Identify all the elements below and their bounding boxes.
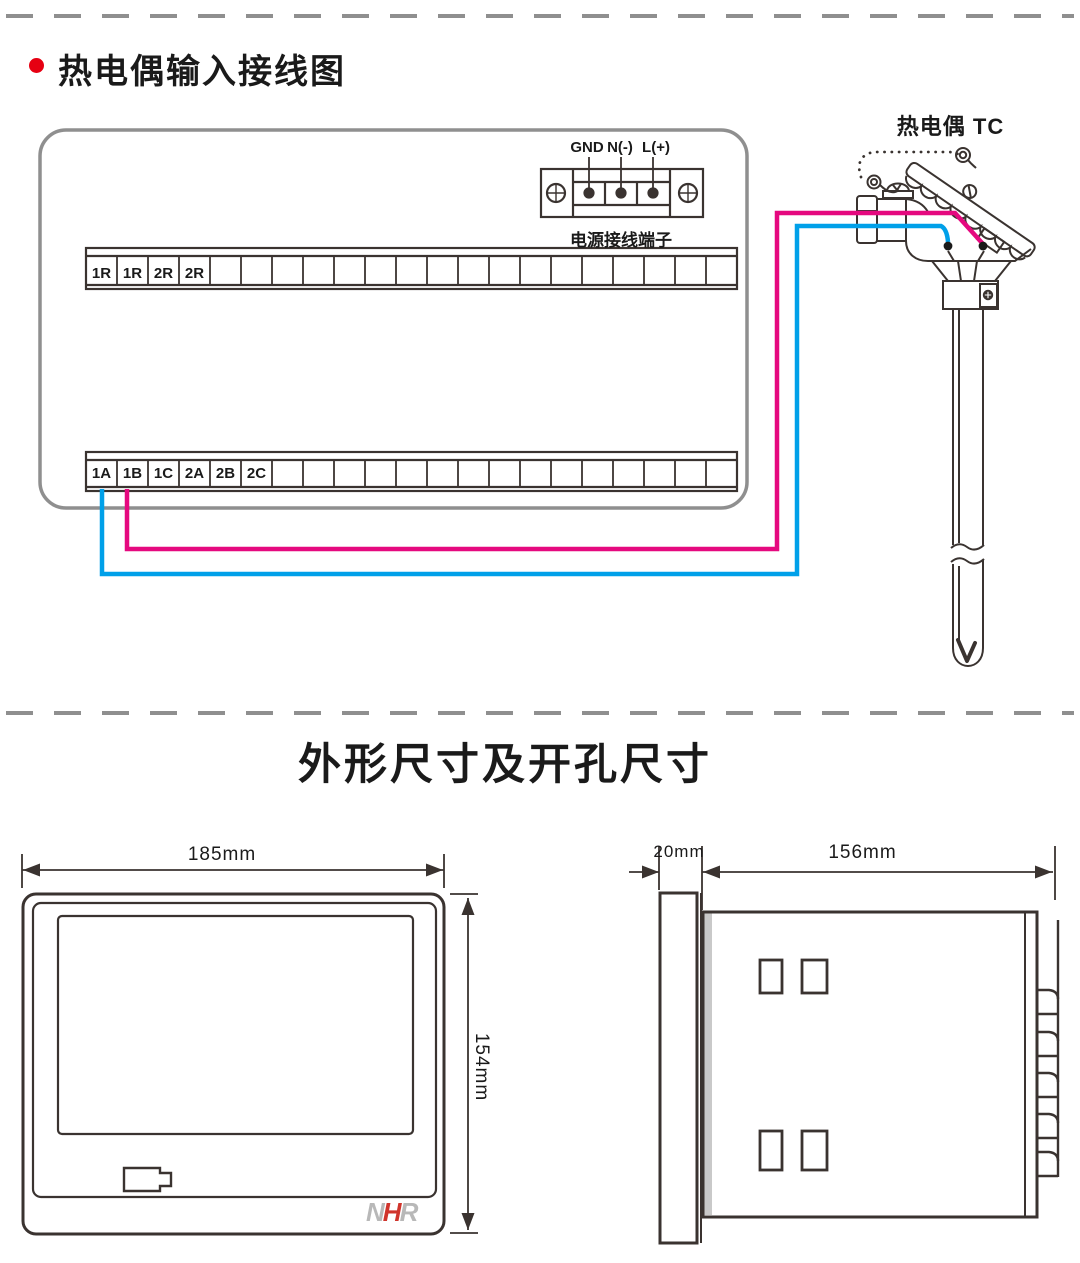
logo-letter-r: R [400,1197,417,1227]
front-view-drawing [22,854,478,1234]
manual-page: 热电偶输入接线图 GND N(-) L(+) 电源接线端子 1R 1R 2R 2… [0,0,1080,1263]
terminal-1a: 1A [86,463,117,485]
thermocouple-label: 热电偶 TC [878,109,1023,141]
thermocouple-cap [897,150,1044,269]
nhr-logo: NHR [366,1197,416,1228]
terminal-2r-b: 2R [179,263,210,285]
vent-slots [760,960,827,1170]
logo-letter-n: N [366,1197,383,1227]
line-art [0,0,1080,1263]
wire-pink-1b [127,213,983,549]
dimensions-section-title: 外形尺寸及开孔尺寸 [155,730,855,792]
logo-letter-h: H [383,1197,400,1227]
terminal-1r-b: 1R [117,263,148,285]
terminal-2a: 2A [179,463,210,485]
terminal-1b: 1B [117,463,148,485]
terminal-1c: 1C [148,463,179,485]
side-length-label: 156mm [815,842,910,864]
side-view-drawing [629,846,1058,1243]
screen-area [58,916,413,1134]
junction-v-mark [958,640,975,661]
terminal-tabs [1037,920,1058,1177]
power-terminal-block [541,157,703,217]
wire-blue-1a [102,226,948,574]
front-height-label: 154mm [472,1012,492,1122]
terminal-1r-a: 1R [86,263,117,285]
wiring-section-title: 热电偶输入接线图 [58,44,346,93]
power-label-l: L(+) [626,139,686,156]
power-terminal-caption: 电源接线端子 [551,226,691,251]
front-width-label: 185mm [177,844,267,866]
terminal-2b: 2B [210,463,241,485]
terminal-2r-a: 2R [148,263,179,285]
signal-wires [102,213,987,574]
red-bullet-icon [29,58,44,73]
terminal-2c: 2C [241,463,272,485]
side-depth-label: 20mm [648,842,710,862]
usb-port [124,1168,171,1191]
